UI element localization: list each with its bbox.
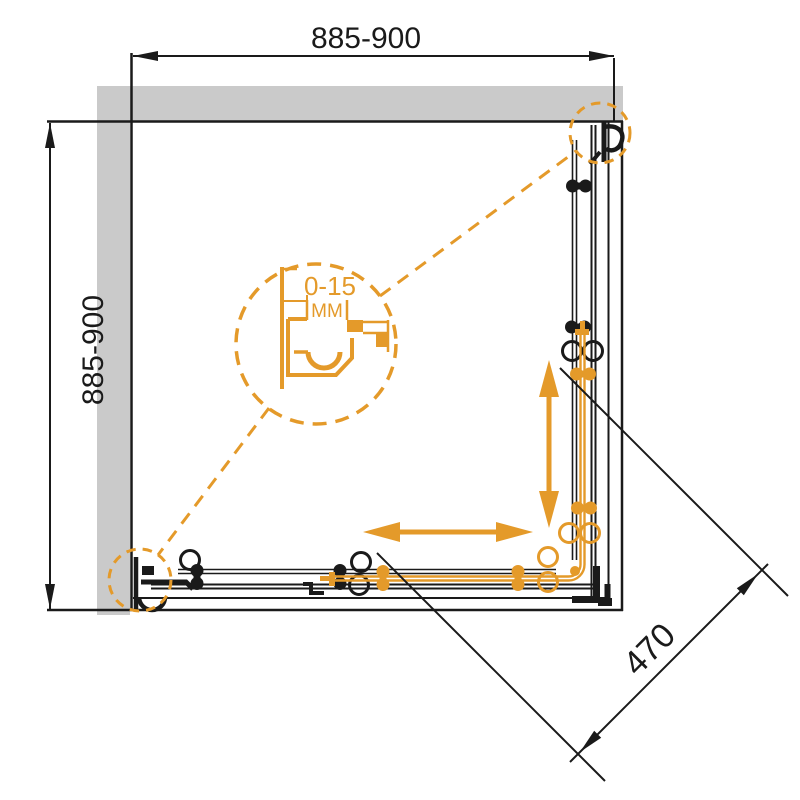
dimension-arrow: [45, 123, 55, 148]
arrow-head-down: [539, 491, 559, 528]
detail-callout: [109, 103, 630, 611]
corner-foot: [598, 598, 612, 606]
slide-arrow-vertical: [539, 360, 559, 528]
roller: [566, 180, 592, 193]
guide-wheel: [584, 342, 603, 361]
extension-line: [377, 553, 605, 781]
top-dimension-label: 885-900: [311, 22, 421, 55]
door-roller: [377, 565, 390, 591]
detail-profile-arc: [308, 352, 340, 368]
door-corner-joint: [570, 566, 580, 576]
door-cap-left: [329, 572, 335, 586]
profile-block: [142, 566, 154, 575]
arrow-head-up: [539, 360, 559, 397]
dimension-arrow: [133, 51, 158, 61]
enclosure-frame: [47, 53, 623, 611]
arrow-head-left: [363, 522, 400, 542]
arrow-head-right: [496, 522, 533, 542]
shower-enclosure-plan-drawing: 885-900 885-900 470 0-15 MM: [0, 0, 800, 800]
fixed-panel-bottom: [151, 551, 594, 595]
dimension-arrow: [589, 51, 614, 61]
door-guide-wheel: [539, 548, 558, 567]
callout-leader-line: [158, 408, 269, 555]
door-guide-wheel: [560, 524, 579, 543]
door-roller: [512, 565, 525, 591]
guide-wheel: [352, 553, 371, 572]
detail-gap-label: 0-15: [304, 271, 356, 301]
wall-top: [97, 86, 623, 121]
detail-unit-label: MM: [311, 301, 343, 322]
guide-wheel: [181, 551, 200, 570]
diagonal-dimension-label: 470: [616, 616, 683, 683]
wall-profile-bottom-left: [136, 557, 193, 611]
slide-arrow-horizontal: [363, 522, 533, 542]
door-cap-top-stem: [580, 321, 585, 330]
callout-leader-line: [380, 151, 576, 296]
door-roller: [570, 368, 596, 381]
sliding-doors: [320, 321, 600, 592]
walls: [97, 86, 623, 615]
extension-line: [560, 368, 788, 596]
detail-channel-block: [376, 333, 388, 347]
profile-hook: [604, 126, 622, 150]
door-glass-inner: [334, 334, 581, 577]
dimension-arrow: [45, 584, 55, 609]
door-cap-left-stem: [320, 576, 329, 581]
left-dimension-label: 885-900: [77, 295, 110, 405]
